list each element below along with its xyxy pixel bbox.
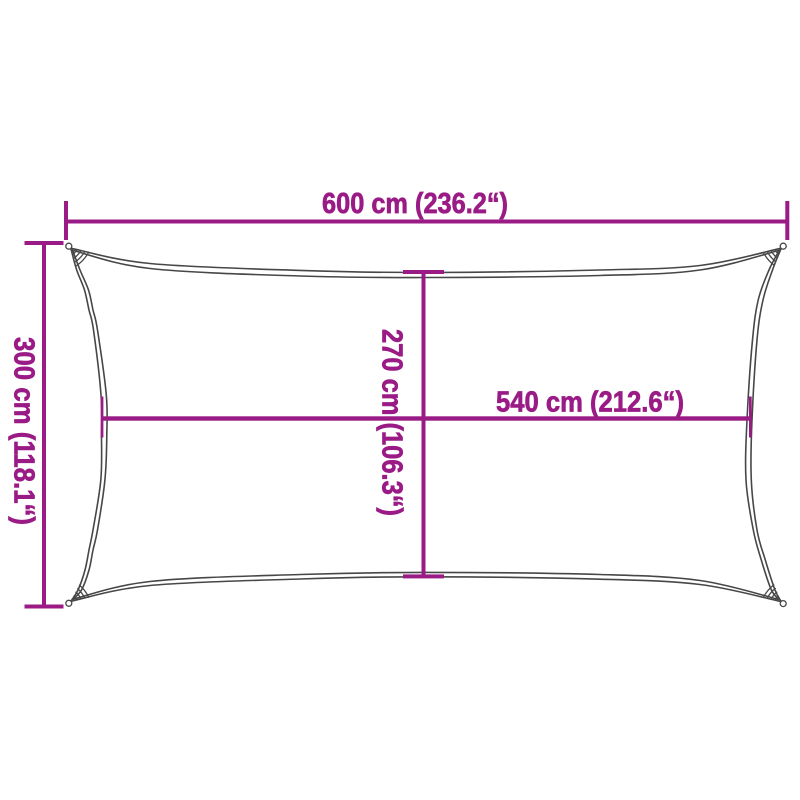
svg-text:270 cm (106.3“): 270 cm (106.3“): [375, 329, 407, 516]
svg-text:540 cm (212.6“): 540 cm (212.6“): [496, 387, 684, 419]
svg-text:600 cm (236.2“): 600 cm (236.2“): [322, 188, 508, 220]
svg-text:300 cm (118.1“): 300 cm (118.1“): [8, 337, 40, 525]
